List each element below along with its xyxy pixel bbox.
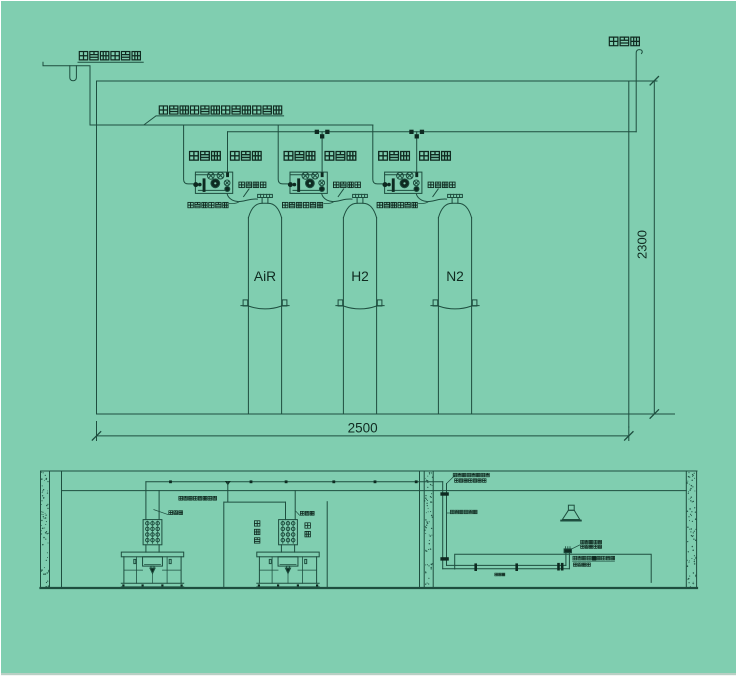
svg-text:N2: N2: [446, 269, 464, 284]
svg-text:H2: H2: [351, 269, 369, 284]
svg-text:2300: 2300: [635, 230, 650, 259]
svg-text:2500: 2500: [348, 421, 378, 436]
svg-text:AiR: AiR: [254, 269, 276, 284]
